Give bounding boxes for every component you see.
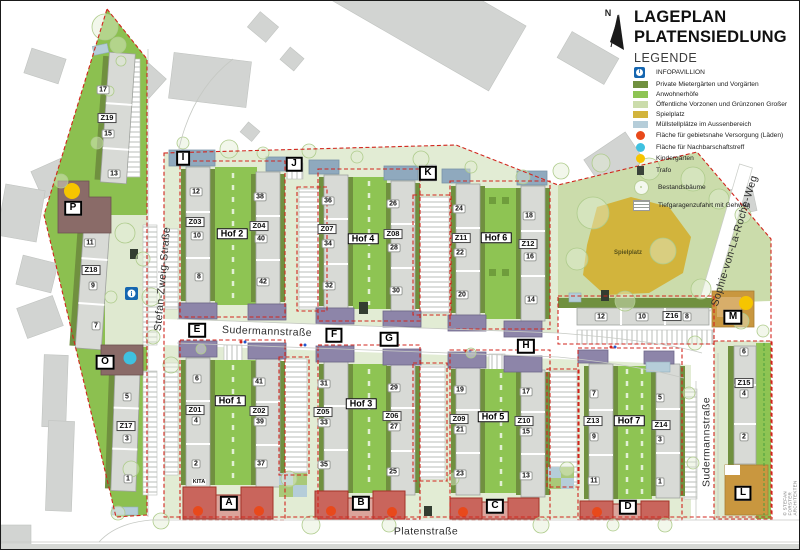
- legend-label: Öffentliche Vorzonen und Grünzonen Große…: [656, 101, 787, 108]
- house-number-badge: 22: [454, 248, 467, 257]
- legend-row-muell: Müllstellplätze im Aussenbereich: [633, 121, 799, 129]
- kita-label: KITA: [192, 479, 206, 485]
- legend-label: Müllstellplätze im Aussenbereich: [656, 121, 751, 128]
- house-number-badge: 5: [123, 392, 132, 401]
- house-number-badge: 11: [84, 238, 96, 247]
- house-number-badge: 3: [123, 434, 132, 443]
- north-label: N: [605, 8, 612, 18]
- building-z-label: Z01: [186, 405, 205, 415]
- building-z-label: Z02: [250, 406, 269, 416]
- block-letter-badge: O: [96, 355, 115, 370]
- svg-text:i: i: [131, 290, 133, 298]
- building-z-label: Z11: [452, 233, 471, 243]
- darkgreen-swatch-icon: [633, 81, 648, 89]
- plan-title: LAGEPLAN PLATENSIEDLUNG: [634, 7, 787, 47]
- building-z-label: Z15: [735, 378, 754, 388]
- house-number-badge: 35: [318, 460, 331, 469]
- block-letter-badge: A: [220, 496, 238, 511]
- house-number-badge: 4: [192, 416, 201, 425]
- block-letter-badge: E: [188, 323, 206, 338]
- legend-label: Private Mietergärten und Vorgärten: [656, 81, 759, 88]
- house-number-badge: 2: [192, 459, 201, 468]
- legend-row-nachbarschaftstreff: Fläche für Nachbarschaftstreff: [633, 143, 799, 152]
- legend-row-tiefgarage: Tiefgaragenzufahrt mit Gehweg: [633, 200, 799, 211]
- block-letter-badge: C: [486, 499, 504, 514]
- title-line-1: LAGEPLAN: [634, 7, 787, 27]
- block-letter-badge: L: [734, 486, 751, 501]
- house-number-badge: 8: [195, 272, 204, 281]
- legend-label: Bestandsbäume: [658, 184, 706, 191]
- info-icon: [634, 67, 645, 78]
- hof-label: Hof 5: [478, 411, 509, 422]
- hof-label: Hof 1: [215, 395, 246, 406]
- house-number-badge: 12: [595, 312, 608, 321]
- house-number-badge: 42: [257, 277, 270, 286]
- house-number-badge: 11: [588, 476, 600, 485]
- building-z-label: Z10: [515, 416, 534, 426]
- block-letter-badge: P: [64, 201, 82, 216]
- infopavillion-icon: i: [125, 287, 138, 300]
- house-number-badge: 10: [191, 231, 204, 240]
- house-number-badge: 25: [387, 467, 400, 476]
- legend-row-private-gardens: Private Mietergärten und Vorgärten: [633, 81, 799, 89]
- yellow-circle-icon: [636, 154, 645, 163]
- legend-row-public-zones: Öffentliche Vorzonen und Grünzonen Große…: [633, 101, 799, 109]
- block-letter-badge: B: [352, 496, 370, 511]
- house-number-badge: 33: [318, 418, 331, 427]
- house-number-badge: 36: [322, 196, 335, 205]
- building-z-label: Z04: [250, 221, 269, 231]
- legend-label: Tiefgaragenzufahrt mit Gehweg: [658, 202, 750, 209]
- hof-label: Hof 7: [614, 415, 645, 426]
- house-number-badge: 28: [388, 243, 401, 252]
- building-z-label: Z19: [98, 113, 117, 123]
- lightgreen-swatch-icon: [633, 101, 648, 109]
- house-number-badge: 13: [520, 471, 533, 480]
- street-label: Platenstraße: [394, 526, 458, 537]
- north-arrow-icon: [610, 14, 624, 50]
- legend-row-spielplatz: Spielplatz: [633, 111, 799, 119]
- block-letter-badge: H: [517, 339, 535, 354]
- house-number-badge: 7: [92, 321, 101, 330]
- building-z-label: Z09: [450, 414, 469, 424]
- legend-row-infopavillion: INFOPAVILLION: [633, 67, 799, 78]
- trafo-square-icon: [637, 166, 644, 175]
- block-letter-badge: I: [176, 151, 190, 166]
- house-number-badge: 32: [323, 281, 336, 290]
- block-letter-badge: J: [286, 157, 303, 172]
- house-number-badge: 41: [253, 377, 266, 386]
- house-number-badge: 18: [523, 211, 536, 220]
- building-z-label: Z18: [82, 265, 101, 275]
- house-number-badge: 34: [322, 239, 335, 248]
- kindergarten-circle: [739, 296, 753, 310]
- legend-label: Fläche für gebietsnahe Versorgung (Läden…: [656, 132, 783, 139]
- house-number-badge: 37: [255, 459, 268, 468]
- legend-row-laeden: Fläche für gebietsnahe Versorgung (Läden…: [633, 131, 799, 140]
- house-number-badge: 24: [453, 204, 466, 213]
- block-letter-badge: M: [723, 310, 742, 325]
- building-z-label: Z03: [186, 217, 205, 227]
- hof-label: Hof 4: [348, 233, 379, 244]
- building-z-label: Z13: [584, 416, 603, 426]
- house-number-badge: 10: [636, 312, 649, 321]
- house-number-badge: 20: [456, 290, 469, 299]
- bottom-street-band: [1, 544, 800, 550]
- legend-label: Fläche für Nachbarschaftstreff: [656, 144, 744, 151]
- legend-label: Trafo: [656, 167, 671, 174]
- siteplan-canvas: i: [0, 0, 800, 550]
- house-number-badge: 8: [683, 312, 692, 321]
- copyright-note: © STEFAN FORSTER ARCHITEKTEN: [783, 480, 798, 515]
- legend-label: Anwohnerhöfe: [656, 91, 699, 98]
- house-number-badge: 31: [318, 379, 331, 388]
- house-number-badge: 23: [454, 469, 467, 478]
- legend-label: Kindergärten: [656, 155, 694, 162]
- house-number-badge: 6: [193, 374, 202, 383]
- house-number-badge: 17: [520, 387, 533, 396]
- street-label: Sudermannstraße: [701, 397, 712, 487]
- garage-ramp-icon: [633, 200, 650, 211]
- block-letter-badge: F: [325, 328, 342, 343]
- legend-row-trafo: Trafo: [633, 166, 799, 175]
- house-number-badge: 30: [390, 286, 403, 295]
- house-number-badge: 7: [590, 389, 599, 398]
- building-z-label: Z17: [117, 421, 136, 431]
- house-number-badge: 9: [590, 432, 599, 441]
- block-letter-badge: D: [619, 500, 637, 515]
- house-number-badge: 12: [190, 187, 203, 196]
- red-circle-icon: [636, 131, 645, 140]
- building-z-label: Z06: [383, 411, 402, 421]
- gold-swatch-icon: [633, 111, 648, 119]
- house-number-badge: 1: [124, 474, 133, 483]
- hof-label: Hof 6: [481, 232, 512, 243]
- house-number-badge: 5: [656, 393, 665, 402]
- legend-row-anwohnerhoefe: Anwohnerhöfe: [633, 91, 799, 99]
- house-number-badge: 26: [387, 199, 400, 208]
- building-z-label: Z12: [519, 239, 538, 249]
- house-number-badge: 3: [656, 435, 665, 444]
- house-number-badge: 17: [97, 85, 110, 94]
- house-number-badge: 6: [740, 347, 749, 356]
- house-number-badge: 15: [102, 129, 115, 138]
- legend-row-kindergaerten: Kindergärten: [633, 154, 799, 163]
- house-number-badge: 38: [254, 192, 267, 201]
- building-z-label: Z05: [314, 407, 333, 417]
- blue-swatch-icon: [633, 121, 648, 129]
- block-letter-badge: K: [419, 166, 437, 181]
- muell-area: [646, 362, 670, 372]
- building-z-label: Z08: [384, 229, 403, 239]
- legend-row-bestandsbaeume: Bestandsbäume: [633, 180, 799, 195]
- house-number-badge: 19: [454, 385, 467, 394]
- hof-label: Hof 2: [217, 228, 248, 239]
- house-number-badge: 40: [255, 234, 268, 243]
- building-z-label: Z16: [663, 311, 682, 321]
- title-line-2: PLATENSIEDLUNG: [634, 27, 787, 47]
- spielplatz-label: Spielplatz: [614, 250, 642, 256]
- house-number-badge: 13: [108, 169, 121, 178]
- house-number-badge: 1: [656, 477, 665, 486]
- house-number-badge: 4: [740, 389, 749, 398]
- building-z-label: Z14: [652, 420, 671, 430]
- house-number-badge: 27: [388, 422, 401, 431]
- house-number-badge: 29: [388, 383, 401, 392]
- green-swatch-icon: [633, 91, 648, 99]
- house-number-badge: 21: [454, 425, 467, 434]
- legend-label: Spielplatz: [656, 111, 685, 118]
- house-number-badge: 39: [254, 417, 267, 426]
- block-letter-badge: G: [380, 332, 399, 347]
- muell-area: [569, 293, 581, 302]
- house-number-badge: 14: [525, 295, 538, 304]
- tree-circle-icon: [634, 180, 649, 195]
- legend-label: INFOPAVILLION: [656, 69, 705, 76]
- nachbarschaftstreff-circle: [124, 352, 137, 365]
- hof-label: Hof 3: [346, 398, 377, 409]
- house-number-badge: 16: [524, 252, 537, 261]
- house-number-badge: 9: [89, 281, 98, 290]
- house-number-badge: 2: [740, 432, 749, 441]
- legend-heading: LEGENDE: [634, 51, 697, 65]
- cyan-circle-icon: [636, 143, 645, 152]
- house-number-badge: 15: [520, 427, 533, 436]
- legend: INFOPAVILLION Private Mietergärten und V…: [633, 67, 799, 213]
- building-z-label: Z07: [318, 224, 337, 234]
